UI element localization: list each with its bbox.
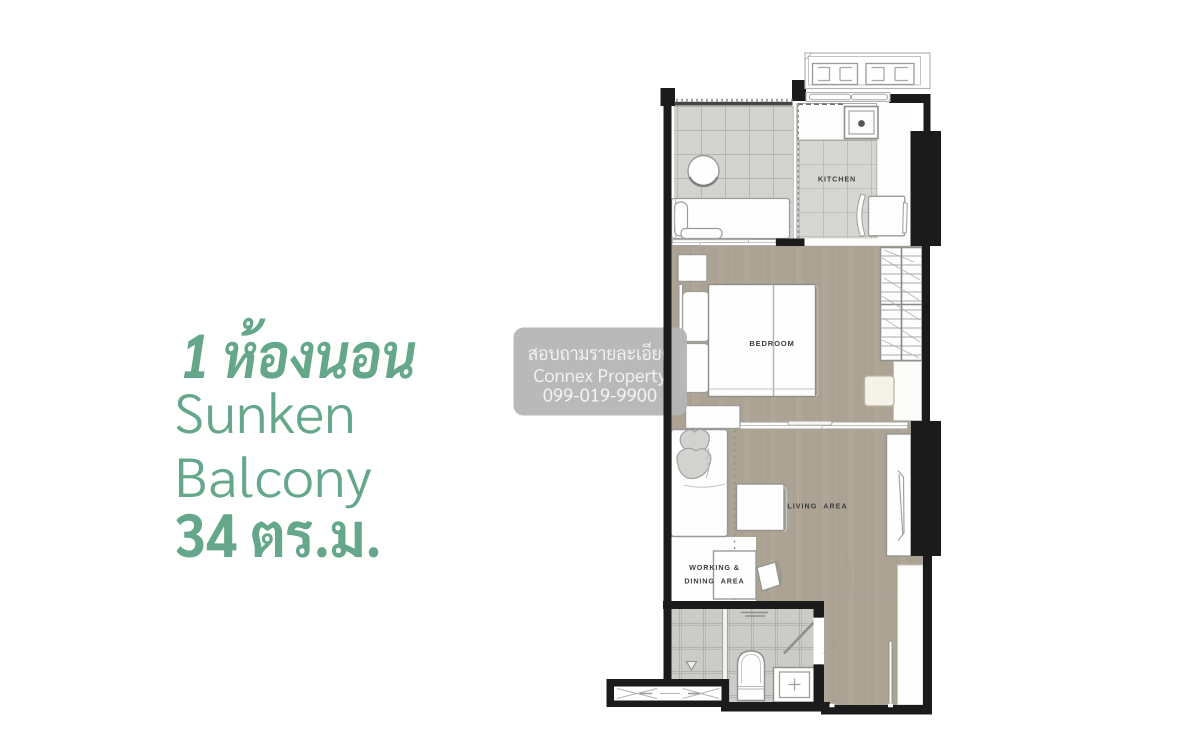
svg-text:LIVING AREA: LIVING AREA bbox=[787, 502, 847, 511]
svg-text:BEDROOM: BEDROOM bbox=[749, 339, 794, 348]
svg-text:DINING AREA: DINING AREA bbox=[684, 577, 744, 586]
svg-text:WORKING &: WORKING & bbox=[689, 563, 740, 572]
svg-text:KITCHEN: KITCHEN bbox=[818, 175, 856, 184]
